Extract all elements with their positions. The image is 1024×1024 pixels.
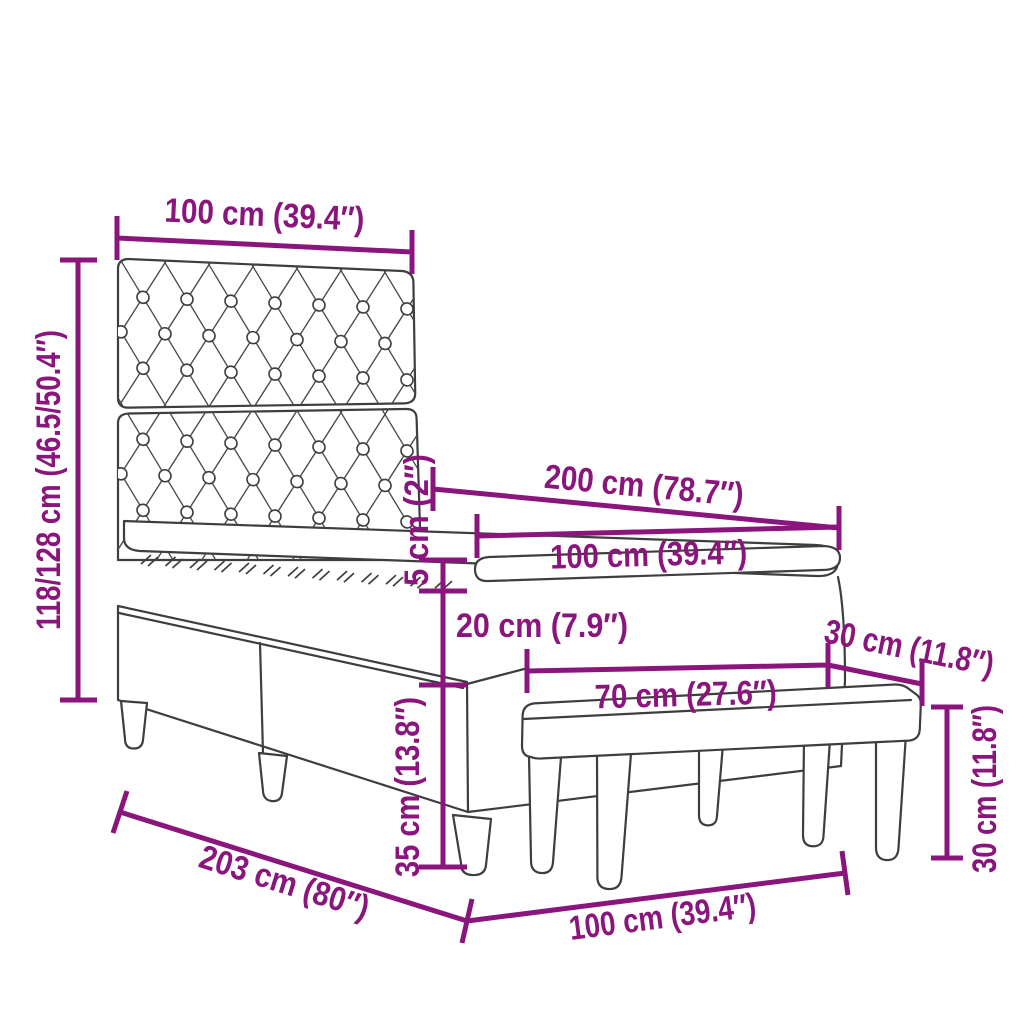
diagram-canvas: 100 cm (39.4″) 118/128 cm (46.5/50.4″) 2… — [0, 0, 1024, 1024]
dim-bench-width-label: 70 cm (27.6″) — [594, 674, 777, 717]
bed-leg — [121, 701, 147, 749]
bed-leg — [259, 753, 287, 801]
bed-dimension-diagram: 100 cm (39.4″) 118/128 cm (46.5/50.4″) 2… — [0, 0, 1024, 1024]
dim-topper-height-label: 5 cm (2″) — [398, 454, 436, 586]
dim-headboard-height-label: 118/128 cm (46.5/50.4″) — [30, 330, 68, 630]
dim-bench-height-label: 30 cm (11.8″) — [966, 705, 1004, 873]
dim-mattress-height-label: 20 cm (7.9″) — [456, 607, 628, 645]
dim-base-height-label: 35 cm (13.8″) — [389, 697, 427, 877]
dim-mattress-width-label: 100 cm (39.4″) — [550, 533, 748, 576]
